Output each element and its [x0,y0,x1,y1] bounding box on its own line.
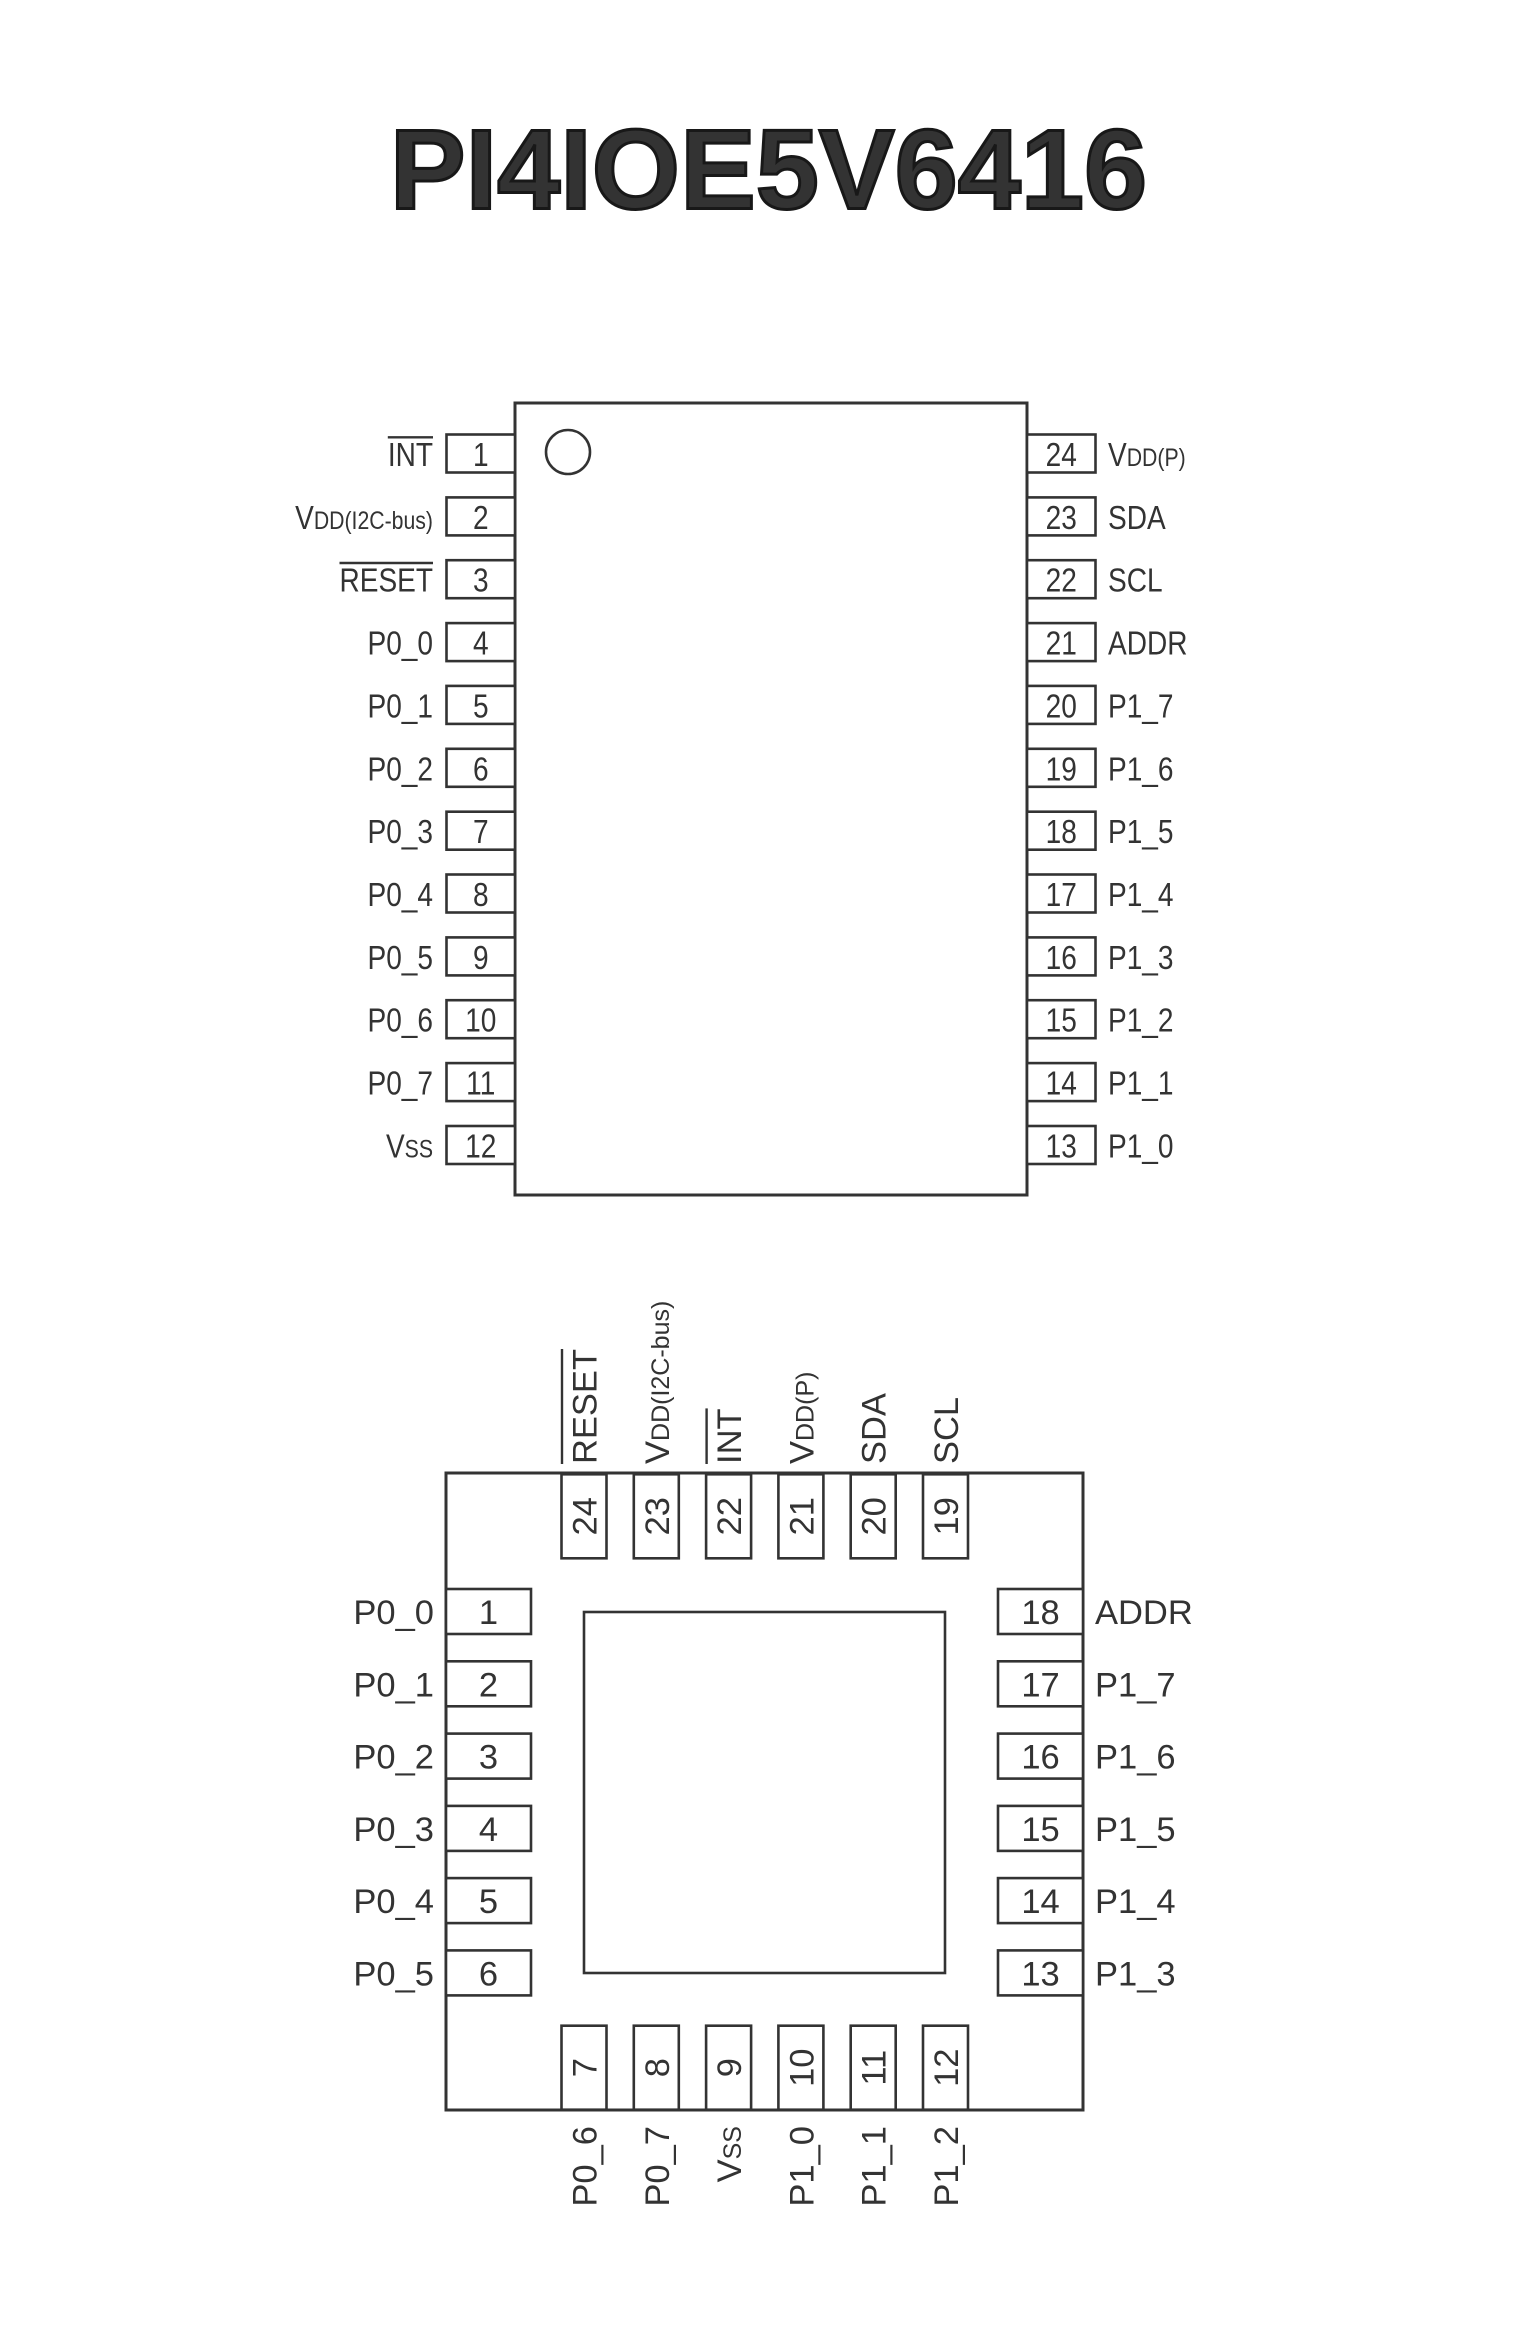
svg-text:ADDR: ADDR [1095,1594,1193,1632]
svg-text:13: 13 [1021,1955,1059,1993]
svg-text:8: 8 [473,877,489,914]
svg-text:22: 22 [711,1497,749,1535]
svg-text:P1_1: P1_1 [856,2126,894,2207]
svg-text:10: 10 [465,1003,496,1040]
svg-text:RESET: RESET [567,1349,605,1464]
svg-text:15: 15 [1046,1003,1077,1040]
svg-text:15: 15 [1021,1811,1059,1849]
svg-text:14: 14 [1021,1883,1059,1921]
svg-text:22: 22 [1046,563,1077,600]
svg-text:P1_6: P1_6 [1108,751,1173,788]
svg-text:10: 10 [783,2049,821,2087]
svg-text:P0_4: P0_4 [353,1883,434,1921]
svg-text:9: 9 [473,940,489,977]
svg-text:P1_0: P1_0 [783,2126,821,2207]
svg-text:P0_0: P0_0 [368,626,433,663]
svg-text:P1_0: P1_0 [1108,1128,1173,1165]
svg-text:INT: INT [388,437,433,474]
svg-text:7: 7 [567,2058,605,2077]
svg-text:17: 17 [1021,1666,1059,1704]
svg-text:20: 20 [856,1497,894,1535]
svg-text:P0_2: P0_2 [353,1739,434,1777]
svg-text:20: 20 [1046,688,1077,725]
svg-text:5: 5 [479,1883,498,1921]
svg-text:P0_3: P0_3 [353,1811,434,1849]
svg-text:P1_4: P1_4 [1095,1883,1176,1921]
svg-text:24: 24 [567,1497,605,1535]
svg-text:P0_1: P0_1 [368,688,433,725]
svg-text:11: 11 [856,2050,894,2086]
svg-text:SDA: SDA [1108,500,1166,537]
svg-text:23: 23 [1046,500,1077,537]
svg-text:P1_6: P1_6 [1095,1739,1176,1777]
svg-text:2: 2 [473,500,489,537]
svg-text:ADDR: ADDR [1108,626,1187,663]
svg-text:SDA: SDA [856,1393,894,1464]
svg-text:PI4IOE5V6416: PI4IOE5V6416 [390,107,1147,234]
svg-text:16: 16 [1046,940,1077,977]
svg-text:19: 19 [928,1497,966,1535]
svg-text:VSS: VSS [386,1128,433,1165]
svg-text:P0_3: P0_3 [368,814,433,851]
svg-text:9: 9 [711,2058,749,2077]
svg-text:P0_7: P0_7 [368,1066,433,1103]
svg-text:P0_4: P0_4 [368,877,433,914]
svg-text:12: 12 [465,1128,496,1165]
svg-text:3: 3 [473,563,489,600]
svg-text:P0_6: P0_6 [368,1003,433,1040]
svg-text:RESET: RESET [340,563,433,600]
svg-text:P1_7: P1_7 [1095,1666,1176,1704]
svg-text:VDD(I2C-bus): VDD(I2C-bus) [295,500,433,537]
svg-text:21: 21 [1046,626,1077,663]
svg-text:P1_5: P1_5 [1095,1811,1176,1849]
svg-text:12: 12 [928,2049,966,2087]
svg-text:19: 19 [1046,751,1077,788]
svg-text:P1_7: P1_7 [1108,688,1173,725]
svg-text:SCL: SCL [1108,563,1163,600]
svg-text:P1_4: P1_4 [1108,877,1173,914]
svg-text:P0_0: P0_0 [353,1594,434,1632]
svg-text:P1_5: P1_5 [1108,814,1173,851]
svg-text:1: 1 [473,437,489,474]
svg-text:VDD(P): VDD(P) [1108,437,1186,474]
svg-text:P0_2: P0_2 [368,751,433,788]
svg-text:SCL: SCL [928,1397,966,1464]
svg-text:P1_3: P1_3 [1108,940,1173,977]
svg-text:INT: INT [711,1408,749,1464]
svg-text:P1_2: P1_2 [928,2126,966,2207]
svg-text:11: 11 [466,1066,495,1103]
svg-text:18: 18 [1046,814,1077,851]
svg-text:6: 6 [473,751,489,788]
svg-text:13: 13 [1046,1128,1077,1165]
svg-text:14: 14 [1046,1066,1077,1103]
svg-text:2: 2 [479,1666,498,1704]
svg-text:17: 17 [1046,877,1077,914]
svg-text:P0_5: P0_5 [353,1955,434,1993]
svg-text:6: 6 [479,1955,498,1993]
svg-text:P1_3: P1_3 [1095,1955,1176,1993]
svg-text:P0_6: P0_6 [567,2126,605,2207]
svg-text:P0_1: P0_1 [353,1666,434,1704]
svg-text:3: 3 [479,1739,498,1777]
svg-text:P0_7: P0_7 [639,2126,677,2207]
svg-text:18: 18 [1021,1594,1059,1632]
svg-text:7: 7 [473,814,489,851]
svg-text:P1_2: P1_2 [1108,1003,1173,1040]
svg-text:21: 21 [783,1497,821,1535]
svg-text:23: 23 [639,1497,677,1535]
svg-text:8: 8 [639,2058,677,2077]
svg-text:4: 4 [479,1811,498,1849]
svg-text:24: 24 [1046,437,1077,474]
svg-text:16: 16 [1021,1739,1059,1777]
svg-text:4: 4 [473,626,489,663]
svg-text:P1_1: P1_1 [1108,1066,1173,1103]
svg-text:5: 5 [473,688,489,725]
svg-text:1: 1 [479,1594,498,1632]
svg-text:P0_5: P0_5 [368,940,433,977]
